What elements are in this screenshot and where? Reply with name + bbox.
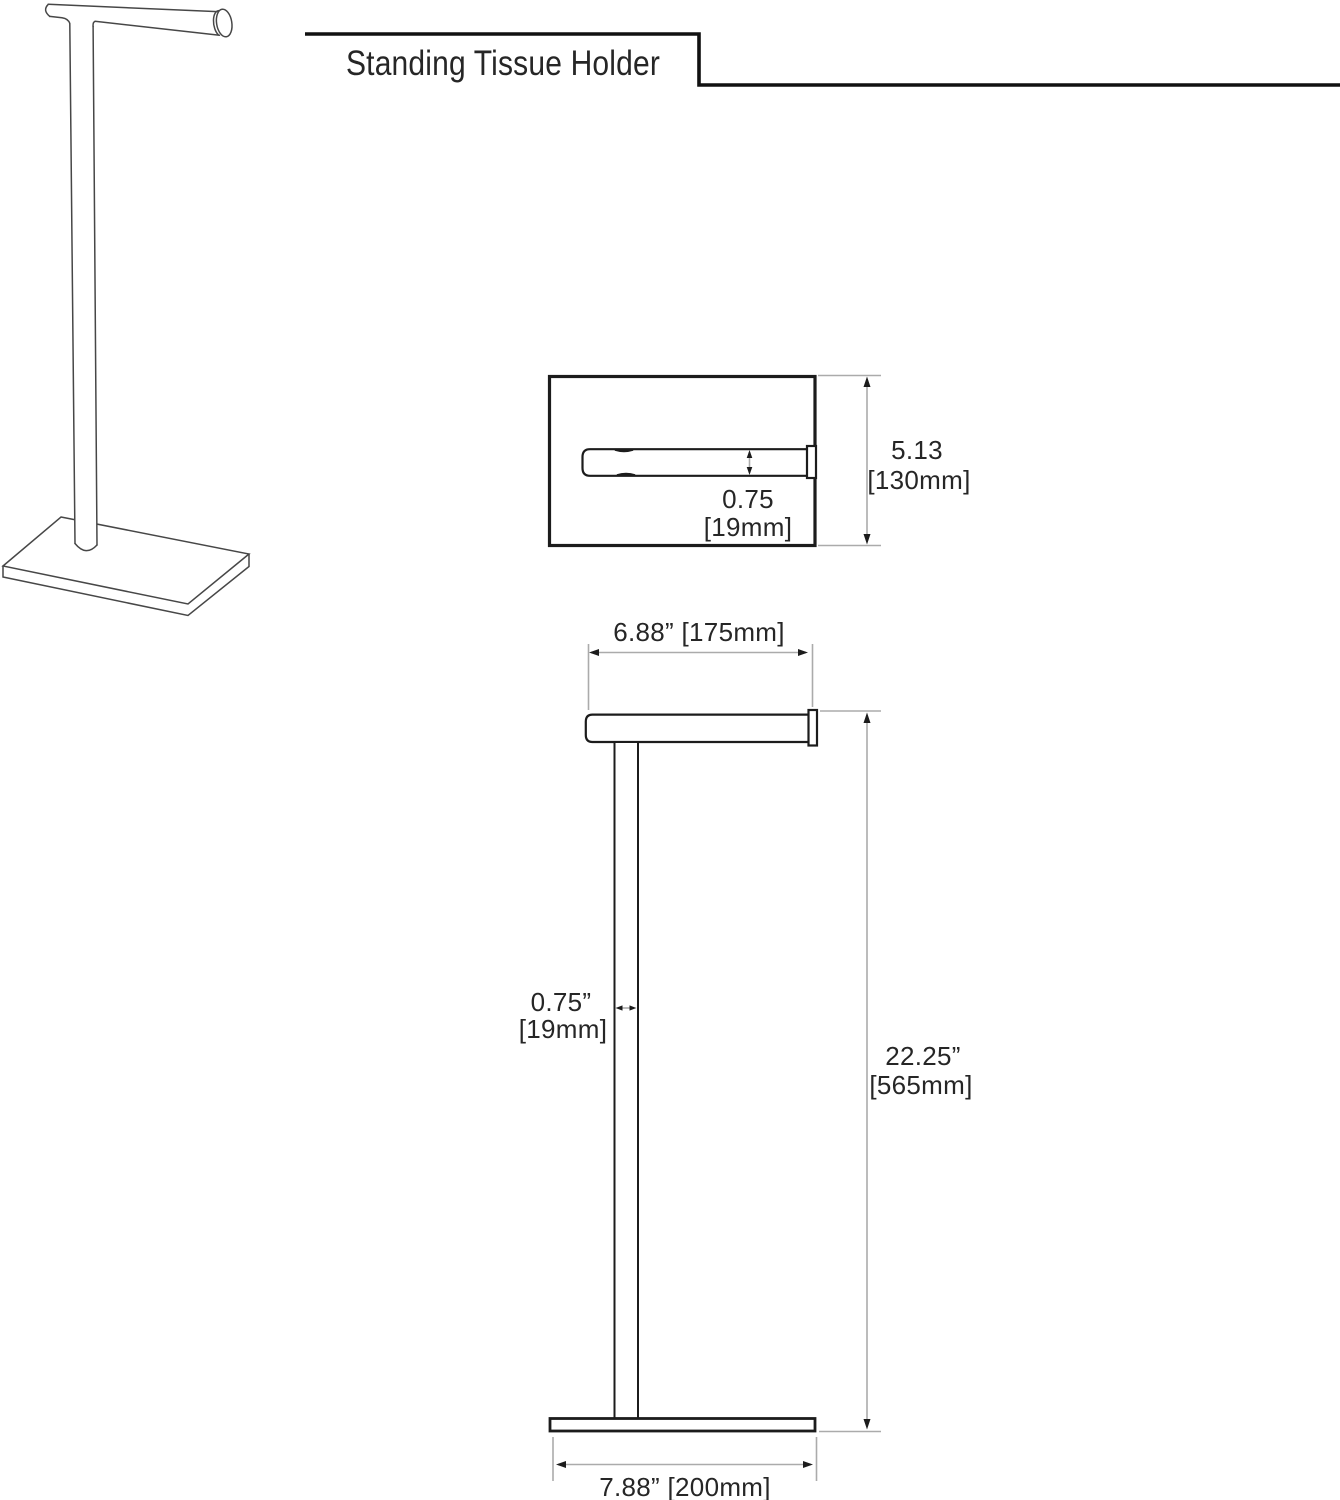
arrowhead xyxy=(864,377,871,388)
dim-label-depth-in: 5.13 xyxy=(891,435,943,465)
arrowhead xyxy=(864,713,871,724)
arrowhead xyxy=(864,534,871,545)
dim-label-top-bar-diameter-mm: [19mm] xyxy=(704,512,792,542)
perspective-bar-bottom-left xyxy=(50,16,70,23)
top-view-bar-end-cap xyxy=(807,446,816,478)
arrowhead xyxy=(798,649,808,656)
perspective-base-top xyxy=(3,517,249,604)
dim-label-pole-diameter-mm: [19mm] xyxy=(519,1014,607,1044)
dim-label-height-mm: [565mm] xyxy=(869,1070,972,1100)
dim-label-top-bar-diameter-in: 0.75 xyxy=(722,484,774,514)
perspective-view xyxy=(3,4,249,615)
dim-label-pole-diameter-in: 0.75” xyxy=(531,987,592,1017)
title-block: Standing Tissue Holder xyxy=(305,34,1340,85)
front-view-roller-bar xyxy=(586,715,809,742)
page-title: Standing Tissue Holder xyxy=(346,44,660,83)
top-view: 0.75 [19mm] 5.13 [130mm] xyxy=(550,376,971,546)
dim-label-depth-mm: [130mm] xyxy=(867,465,970,495)
perspective-bar-left-cap xyxy=(46,4,50,16)
top-view-bar-seam-top xyxy=(615,450,633,451)
dim-label-base-width: 7.88” [200mm] xyxy=(599,1472,771,1500)
perspective-bar-top-edge xyxy=(48,4,217,11)
dim-label-height-in: 22.25” xyxy=(885,1041,961,1071)
front-view-base xyxy=(550,1419,815,1432)
arrowhead xyxy=(803,1461,813,1468)
perspective-bar-bottom-right xyxy=(93,21,219,35)
front-view-pole xyxy=(615,742,639,1419)
arrowhead xyxy=(556,1461,566,1468)
arrowhead xyxy=(864,1419,871,1430)
top-view-bar-seam-bottom xyxy=(617,474,635,475)
arrowhead xyxy=(589,649,599,656)
drawing-sheet: Standing Tissue Holder 0.75 [19mm] xyxy=(0,0,1340,1500)
top-view-roller-bar xyxy=(583,449,809,476)
front-view-bar-end-cap xyxy=(809,710,818,746)
dim-label-bar-length: 6.88” [175mm] xyxy=(613,617,785,647)
front-view: 6.88” [175mm] 0.75” [19mm] 22.25” [565mm… xyxy=(519,617,973,1500)
